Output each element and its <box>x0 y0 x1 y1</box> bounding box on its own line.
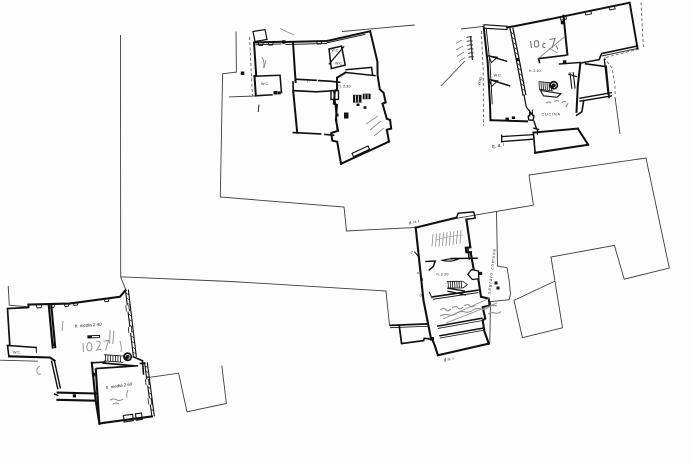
svg-text:sagrato comune: sagrato comune <box>486 248 497 294</box>
svg-text:q. a. i: q. a. i <box>491 142 505 150</box>
svg-text:h. media 2.40: h. media 2.40 <box>75 322 102 329</box>
svg-text:prop.: prop. <box>477 76 483 86</box>
svg-text:d n. i: d n. i <box>443 355 455 362</box>
svg-text:h. 2.20: h. 2.20 <box>437 271 450 276</box>
svg-text:s: s <box>417 271 419 275</box>
svg-text:W.C.: W.C. <box>332 49 340 53</box>
svg-text:h. 2.10: h. 2.10 <box>339 84 352 89</box>
svg-text:h. media 2.60: h. media 2.60 <box>105 381 133 390</box>
svg-text:d. n. i: d. n. i <box>408 218 421 226</box>
svg-text:17: 17 <box>307 80 311 84</box>
svg-text:W.C.: W.C. <box>261 82 269 86</box>
svg-text:W.C.: W.C. <box>13 351 21 355</box>
svg-text:W.C: W.C <box>494 74 501 78</box>
svg-text:CUCINA: CUCINA <box>542 113 561 117</box>
svg-text:h. 2.10: h. 2.10 <box>529 69 541 73</box>
svg-text:-2: -2 <box>410 251 414 255</box>
svg-text:W.C.: W.C. <box>335 62 343 66</box>
